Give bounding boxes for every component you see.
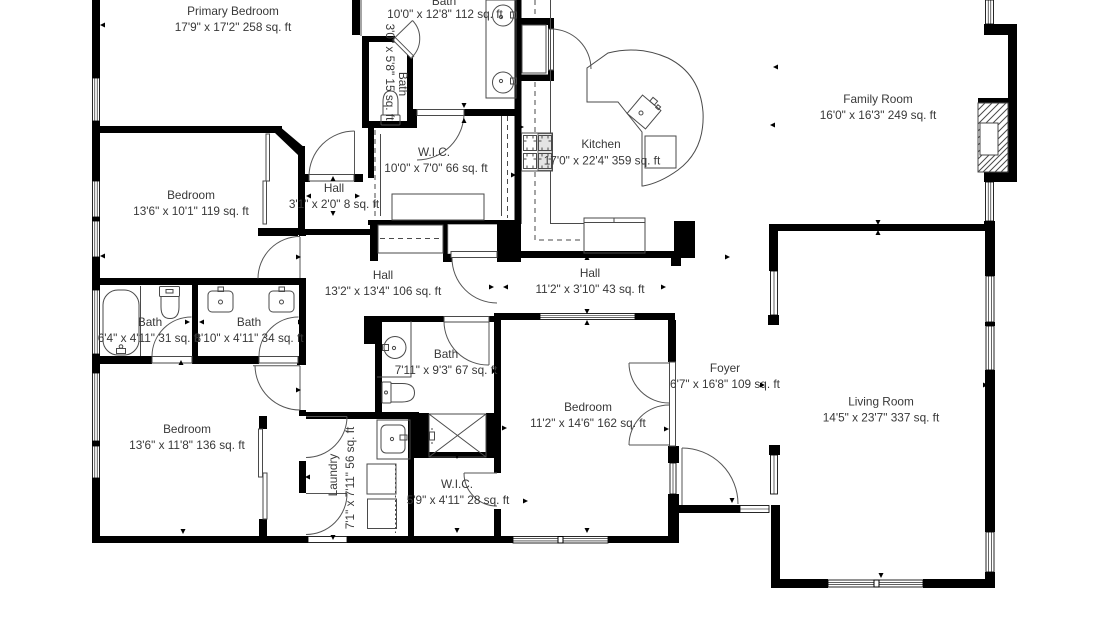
svg-text:W.I.C.: W.I.C.	[441, 477, 473, 491]
svg-text:Bath: Bath	[138, 315, 162, 329]
svg-text:Hall: Hall	[580, 266, 600, 280]
svg-text:6'7" x 16'8" 109 sq. ft: 6'7" x 16'8" 109 sq. ft	[670, 377, 781, 391]
svg-text:W.I.C.: W.I.C.	[418, 145, 450, 159]
svg-text:7'11" x 9'3" 67 sq. ft: 7'11" x 9'3" 67 sq. ft	[395, 363, 498, 377]
svg-text:17'9" x 17'2" 258 sq. ft: 17'9" x 17'2" 258 sq. ft	[175, 20, 292, 34]
svg-text:Bedroom: Bedroom	[167, 188, 215, 202]
svg-text:10'0" x 12'8" 112 sq. ft: 10'0" x 12'8" 112 sq. ft	[387, 7, 503, 21]
svg-text:10'0" x 7'0" 66 sq. ft: 10'0" x 7'0" 66 sq. ft	[384, 161, 488, 175]
svg-text:14'5" x 23'7" 337 sq. ft: 14'5" x 23'7" 337 sq. ft	[823, 411, 940, 425]
svg-text:17'0" x 22'4" 359 sq. ft: 17'0" x 22'4" 359 sq. ft	[544, 154, 661, 168]
svg-text:Bedroom: Bedroom	[564, 400, 612, 414]
svg-text:7'1" x 7'11" 56 sq. ft: 7'1" x 7'11" 56 sq. ft	[343, 426, 357, 529]
svg-text:5'9" x 4'11" 28 sq. ft: 5'9" x 4'11" 28 sq. ft	[407, 493, 510, 507]
svg-text:16'0" x 16'3" 249 sq. ft: 16'0" x 16'3" 249 sq. ft	[820, 108, 937, 122]
svg-text:Bath: Bath	[434, 347, 458, 361]
svg-text:13'6" x 10'1" 119 sq. ft: 13'6" x 10'1" 119 sq. ft	[133, 204, 249, 218]
svg-text:Primary Bedroom: Primary Bedroom	[187, 4, 279, 18]
svg-text:Kitchen: Kitchen	[581, 137, 620, 151]
svg-text:Bedroom: Bedroom	[163, 422, 211, 436]
svg-text:8'10" x 4'11" 34 sq. ft: 8'10" x 4'11" 34 sq. ft	[194, 331, 304, 345]
svg-text:Bath: Bath	[396, 72, 410, 96]
svg-text:3'1" x 2'0" 8 sq. ft: 3'1" x 2'0" 8 sq. ft	[289, 197, 380, 211]
svg-text:Hall: Hall	[324, 181, 344, 195]
svg-text:Family Room: Family Room	[843, 92, 913, 106]
svg-text:Foyer: Foyer	[710, 361, 740, 375]
svg-text:6'4" x 4'11" 31 sq. ft: 6'4" x 4'11" 31 sq. ft	[98, 331, 201, 345]
svg-text:3'0" x 5'8" 15 sq. ft: 3'0" x 5'8" 15 sq. ft	[383, 24, 397, 122]
svg-text:11'2" x 3'10" 43 sq. ft: 11'2" x 3'10" 43 sq. ft	[535, 282, 645, 296]
svg-text:Hall: Hall	[373, 268, 393, 282]
svg-text:11'2" x 14'6" 162 sq. ft: 11'2" x 14'6" 162 sq. ft	[530, 416, 646, 430]
svg-text:Bath: Bath	[237, 315, 261, 329]
svg-text:Laundry: Laundry	[326, 454, 340, 497]
svg-text:13'2" x 13'4" 106 sq. ft: 13'2" x 13'4" 106 sq. ft	[325, 284, 442, 298]
svg-text:Living Room: Living Room	[848, 395, 914, 409]
svg-text:13'6" x 11'8" 136 sq. ft: 13'6" x 11'8" 136 sq. ft	[129, 438, 245, 452]
